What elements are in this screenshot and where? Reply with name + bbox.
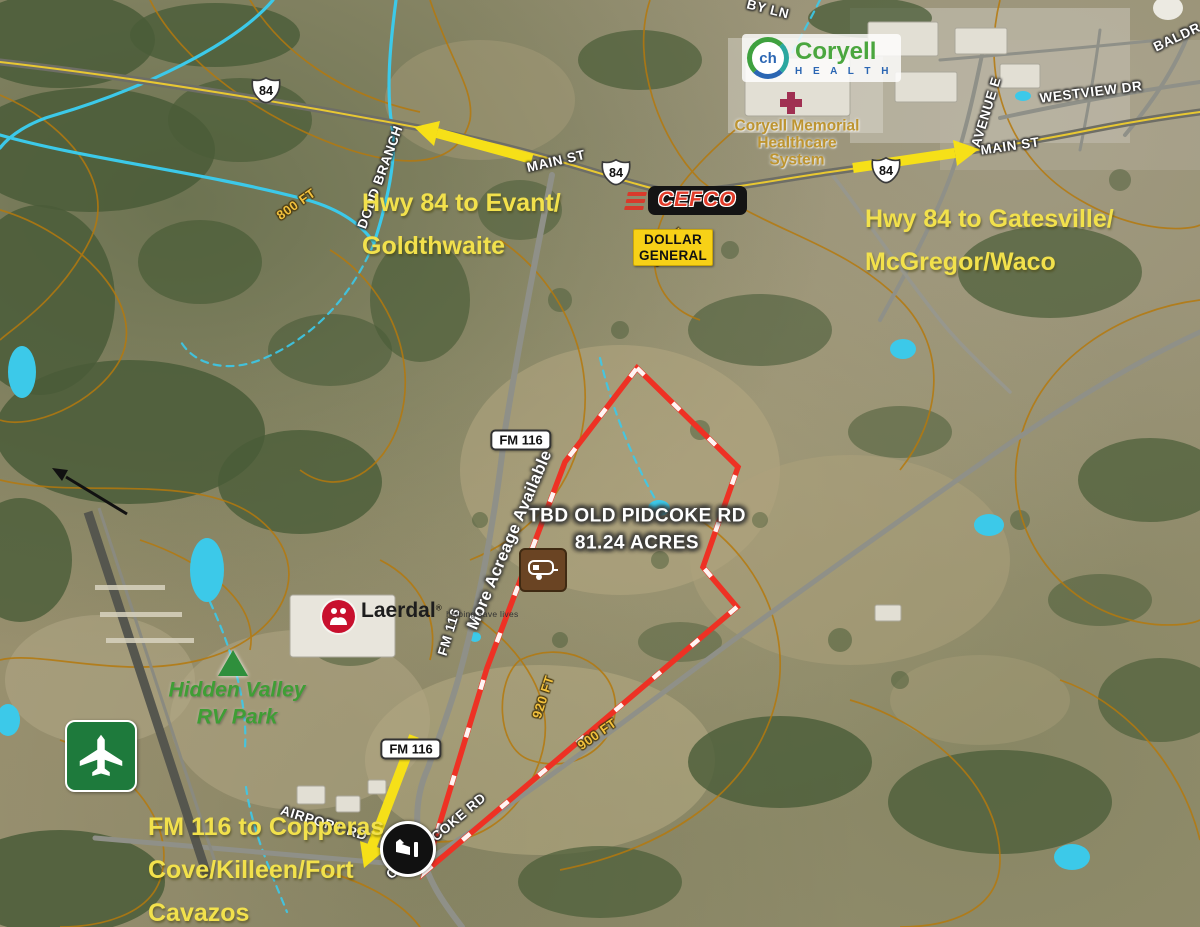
hospital-cross-icon bbox=[780, 92, 802, 114]
coryell-memorial-label: Coryell Memorial Healthcare System bbox=[735, 117, 860, 168]
hidden-valley-label: Hidden Valley RV Park bbox=[169, 677, 306, 732]
svg-text:84: 84 bbox=[879, 164, 893, 178]
callout-line: Goldthwaite bbox=[362, 225, 561, 268]
cefco-logo: CEFCO bbox=[626, 186, 747, 215]
cefco-wordmark: CEFCO bbox=[648, 186, 747, 215]
rv-park-icon bbox=[519, 548, 567, 592]
callout-line: FM 116 to Copperas bbox=[148, 806, 384, 849]
aerial-map: MAIN ST MAIN ST WESTVIEW DR AVENUE E BAL… bbox=[0, 0, 1200, 927]
callout-line: Cove/Killeen/Fort bbox=[148, 849, 384, 892]
callout-fm116-copperas: FM 116 to Copperas Cove/Killeen/Fort Cav… bbox=[148, 806, 384, 927]
coryell-health-word: H E A L T H bbox=[795, 66, 893, 77]
property-road: TBD OLD PIDCOKE RD bbox=[528, 503, 746, 530]
callout-line: Cavazos bbox=[148, 892, 384, 927]
callout-hwy84-gatesville: Hwy 84 to Gatesville/ McGregor/Waco bbox=[865, 198, 1114, 284]
laerdal-tagline: helping save lives bbox=[446, 609, 519, 619]
callout-line: McGregor/Waco bbox=[865, 241, 1114, 284]
us-84-shield: 84 bbox=[870, 156, 902, 185]
coryell-name: Coryell bbox=[795, 40, 893, 64]
drive-in-theater-icon bbox=[380, 821, 436, 877]
dollar-general-line2: GENERAL bbox=[639, 248, 707, 264]
laerdal-reg-mark: ® bbox=[436, 604, 442, 613]
us-84-shield: 84 bbox=[600, 158, 632, 187]
coryell-health-logo: ch Coryell H E A L T H bbox=[742, 34, 901, 82]
svg-text:84: 84 bbox=[609, 166, 623, 180]
campground-tent-icon bbox=[218, 650, 248, 676]
laerdal-logo: Laerdal® helping save lives bbox=[322, 600, 519, 633]
dollar-general-sign: DOLLAR GENERAL bbox=[633, 229, 713, 266]
laerdal-wordmark: Laerdal bbox=[361, 599, 436, 622]
coryell-health-icon: ch bbox=[747, 37, 789, 79]
airport-icon bbox=[65, 720, 137, 792]
us-84-shield: 84 bbox=[250, 76, 282, 105]
svg-text:84: 84 bbox=[259, 84, 273, 98]
fm-116-shield: FM 116 bbox=[380, 739, 441, 760]
dollar-general-line1: DOLLAR bbox=[639, 232, 707, 248]
callout-hwy84-evant: Hwy 84 to Evant/ Goldthwaite bbox=[362, 182, 561, 268]
callout-line: Hwy 84 to Evant/ bbox=[362, 182, 561, 225]
laerdal-icon bbox=[322, 600, 355, 633]
callout-line: Hwy 84 to Gatesville/ bbox=[865, 198, 1114, 241]
fm-116-shield: FM 116 bbox=[490, 430, 551, 451]
cefco-stripes-icon bbox=[624, 192, 647, 210]
